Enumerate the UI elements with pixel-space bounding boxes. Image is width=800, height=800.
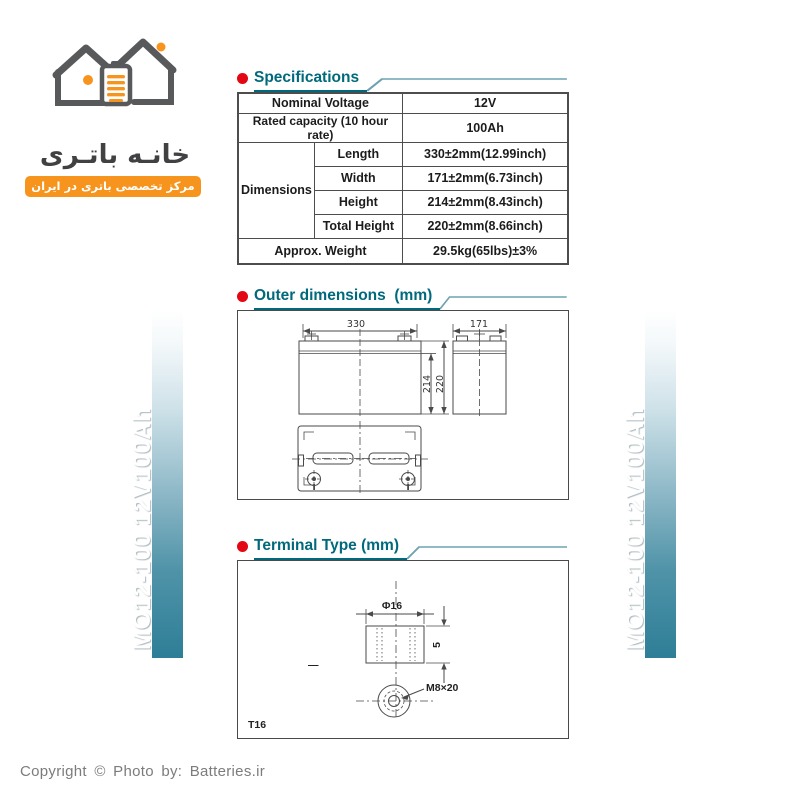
spec-value: 214±2mm(8.43inch) bbox=[402, 190, 568, 214]
header-rule-icon bbox=[407, 546, 567, 560]
brand-title: خانـه باتـری bbox=[25, 140, 205, 170]
front-width-label: 330 bbox=[347, 319, 365, 330]
spec-value: 29.5kg(65lbs)±3% bbox=[402, 238, 568, 264]
terminal-diameter-label: Φ16 bbox=[382, 600, 402, 612]
outer-dimensions-header: Outer dimensions (mm) bbox=[237, 286, 567, 310]
body-height-label: 214 bbox=[422, 375, 433, 393]
table-row: Dimensions Length 330±2mm(12.99inch) bbox=[238, 142, 568, 166]
spec-label: Height bbox=[314, 190, 402, 214]
bullet-icon bbox=[237, 73, 248, 84]
house-body-right-icon bbox=[134, 69, 171, 102]
table-row: Rated capacity (10 hour rate) 100Ah bbox=[238, 113, 568, 142]
sidebar-label: MO12-100 12V100Ah bbox=[130, 407, 156, 650]
battery-top-view bbox=[292, 421, 428, 495]
stud-label: M8×20 bbox=[426, 682, 459, 694]
battery-house-icon bbox=[25, 28, 210, 133]
datasheet-page: خانـه باتـری مرکز تخصصی باتری در ایران S… bbox=[0, 0, 800, 800]
spec-value: 100Ah bbox=[402, 113, 568, 142]
nut-height-label: 5 bbox=[431, 642, 443, 648]
section-title-terminal-type: Terminal Type (mm) bbox=[254, 536, 407, 560]
spec-label-dimensions: Dimensions bbox=[238, 142, 314, 238]
spec-value: 12V bbox=[402, 93, 568, 113]
battery-icon bbox=[102, 66, 130, 104]
sidebar-left: MO12-100 12V100Ah bbox=[152, 310, 183, 658]
terminal-type-header: Terminal Type (mm) bbox=[237, 536, 567, 560]
side-width-label: 171 bbox=[470, 319, 488, 330]
spec-label: Nominal Voltage bbox=[238, 93, 402, 113]
sidebar-label: MO12-100 12V100Ah bbox=[623, 407, 649, 650]
terminal-side-view bbox=[366, 626, 424, 663]
battery-side-view bbox=[453, 329, 506, 418]
spec-label: Rated capacity (10 hour rate) bbox=[238, 113, 402, 142]
terminal-code-label: T16 bbox=[248, 719, 266, 731]
terminal-type-box: Φ16 bbox=[237, 560, 569, 739]
table-row: Approx. Weight 29.5kg(65lbs)±3% bbox=[238, 238, 568, 264]
brand-tagline: مرکز تخصصی باتری در ایران bbox=[25, 176, 201, 197]
spec-label: Width bbox=[314, 166, 402, 190]
spec-value: 330±2mm(12.99inch) bbox=[402, 142, 568, 166]
spec-label: Approx. Weight bbox=[238, 238, 402, 264]
sidebar-right: MO12-100 12V100Ah bbox=[645, 310, 676, 658]
orange-dot-icon bbox=[83, 75, 93, 85]
footer-copyright: Copyright © Photo by: Batteries.ir bbox=[20, 763, 265, 780]
header-rule-icon bbox=[440, 296, 567, 310]
minus-mark: — bbox=[308, 659, 319, 671]
spec-label: Length bbox=[314, 142, 402, 166]
orange-dot-icon bbox=[157, 43, 166, 52]
section-title-specifications: Specifications bbox=[254, 68, 367, 92]
table-row: Nominal Voltage 12V bbox=[238, 93, 568, 113]
dim-heights: 214 220 bbox=[421, 341, 449, 414]
dim-nut-height: 5 bbox=[426, 606, 450, 683]
bullet-icon bbox=[237, 291, 248, 302]
section-title-outer-dimensions: Outer dimensions (mm) bbox=[254, 286, 440, 310]
total-height-label: 220 bbox=[435, 375, 446, 393]
battery-front-view bbox=[299, 329, 421, 418]
spec-value: 171±2mm(6.73inch) bbox=[402, 166, 568, 190]
spec-table: Nominal Voltage 12V Rated capacity (10 h… bbox=[237, 92, 569, 265]
battery-outline-drawing: 330 214 220 bbox=[238, 311, 565, 496]
spec-label: Total Height bbox=[314, 214, 402, 238]
brand-logo: خانـه باتـری مرکز تخصصی باتری در ایران bbox=[25, 28, 210, 197]
bullet-icon bbox=[237, 541, 248, 552]
header-rule-icon bbox=[367, 78, 567, 92]
specifications-header: Specifications bbox=[237, 68, 567, 92]
dim-diameter: Φ16 bbox=[356, 600, 434, 624]
spec-value: 220±2mm(8.66inch) bbox=[402, 214, 568, 238]
outer-dimensions-box: 330 214 220 bbox=[237, 310, 569, 500]
terminal-drawing: Φ16 bbox=[238, 561, 565, 735]
